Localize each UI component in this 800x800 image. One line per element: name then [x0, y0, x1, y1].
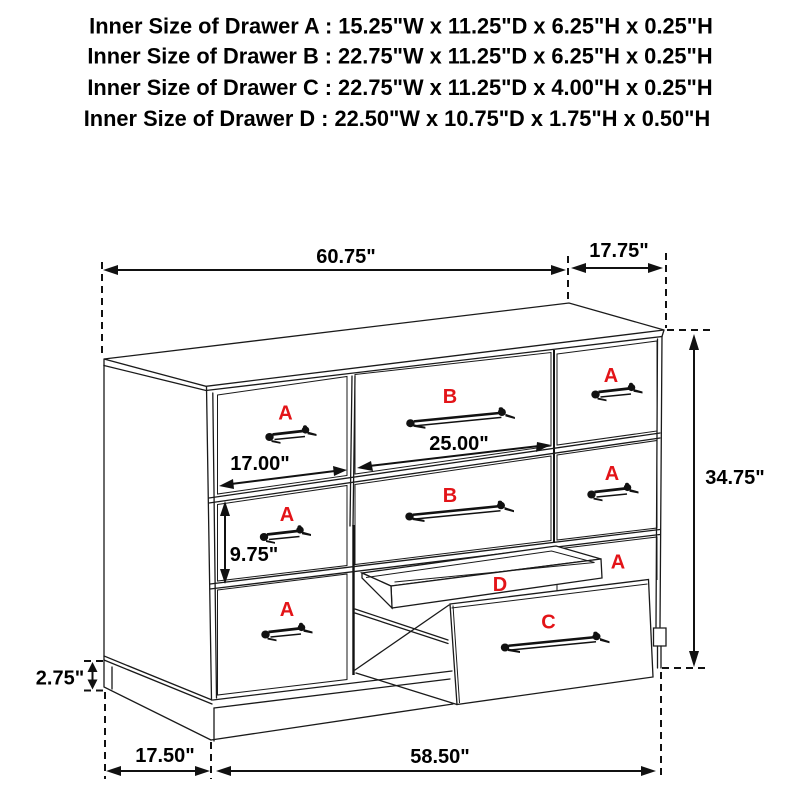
- svg-text:A: A: [280, 599, 294, 621]
- svg-text:58.50": 58.50": [410, 746, 470, 768]
- svg-text:Inner Size of Drawer D : 22.5: Inner Size of Drawer D : 22.50"W x 10.75…: [84, 106, 711, 131]
- svg-text:Inner Size of Drawer C : 22.75: Inner Size of Drawer C : 22.75"W x 11.25…: [87, 75, 712, 100]
- svg-text:A: A: [604, 365, 618, 387]
- svg-text:A: A: [280, 504, 294, 526]
- svg-text:17.00": 17.00": [230, 453, 290, 475]
- svg-text:B: B: [443, 485, 457, 507]
- svg-text:17.75": 17.75": [589, 240, 649, 262]
- svg-text:C: C: [541, 612, 555, 634]
- svg-text:Inner Size of Drawer B : 22.75: Inner Size of Drawer B : 22.75"W x 11.25…: [87, 44, 712, 69]
- svg-text:A: A: [611, 552, 625, 574]
- svg-text:A: A: [278, 403, 292, 425]
- svg-text:B: B: [443, 386, 457, 408]
- svg-text:17.50": 17.50": [135, 745, 195, 767]
- svg-text:34.75": 34.75": [705, 467, 765, 489]
- svg-text:2.75": 2.75": [36, 668, 84, 690]
- svg-text:60.75": 60.75": [316, 246, 376, 268]
- svg-text:A: A: [605, 463, 619, 485]
- svg-text:D: D: [493, 574, 507, 596]
- svg-text:9.75": 9.75": [230, 544, 278, 566]
- svg-text:25.00": 25.00": [429, 433, 489, 455]
- svg-text:Inner Size of Drawer A : 15.25: Inner Size of Drawer A : 15.25"W x 11.25…: [89, 14, 713, 39]
